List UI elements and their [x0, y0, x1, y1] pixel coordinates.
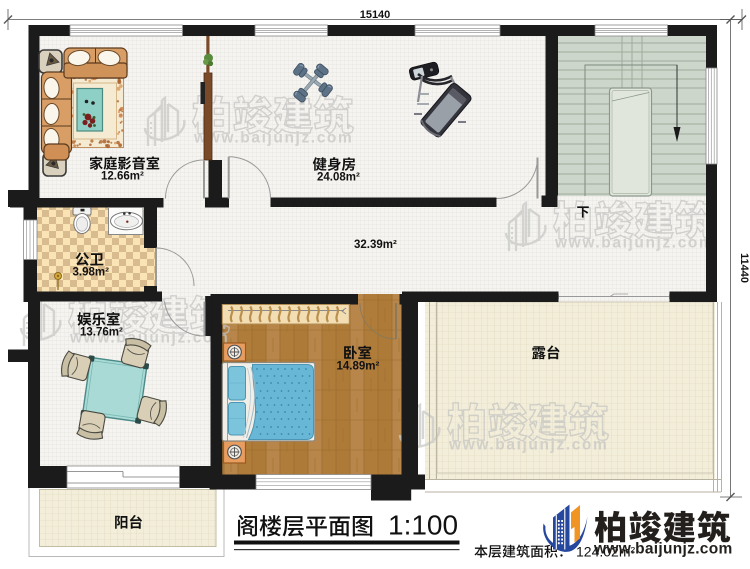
svg-text:11440: 11440: [738, 253, 750, 283]
svg-text:32.39m²: 32.39m²: [354, 239, 397, 251]
svg-text:12.66m²: 12.66m²: [101, 171, 144, 183]
svg-text:14.89m²: 14.89m²: [337, 361, 380, 373]
svg-text:www.baijunjz.com: www.baijunjz.com: [593, 541, 733, 558]
svg-text:13.76m²: 13.76m²: [80, 327, 123, 339]
svg-text:3.98m²: 3.98m²: [73, 267, 110, 279]
svg-text:1:100: 1:100: [388, 510, 458, 541]
svg-text:15140: 15140: [360, 9, 391, 21]
svg-text:24.08m²: 24.08m²: [317, 172, 360, 184]
